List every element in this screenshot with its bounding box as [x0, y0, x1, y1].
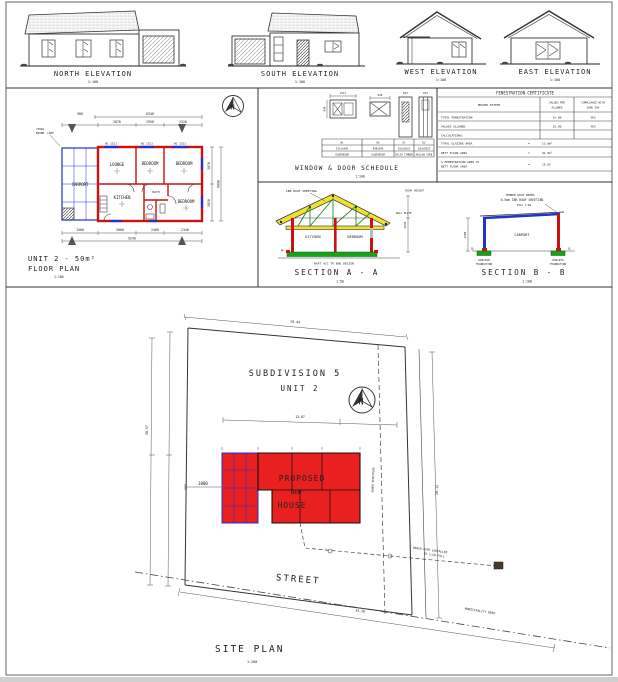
svg-text:900: 900: [77, 112, 83, 116]
svg-text:BEDROOM: BEDROOM: [347, 235, 363, 239]
svg-text:VALUES ALLOWED: VALUES ALLOWED: [441, 125, 466, 129]
roof-annotation: TIMBER ROOF BEAMS 0.5mm IBR ROOF SHEETIN…: [501, 193, 544, 207]
svg-text:TOTAL GLAZING AREA: TOTAL GLAZING AREA: [441, 142, 473, 146]
entrance-door: [297, 40, 309, 66]
wall-middle: [334, 218, 337, 252]
svg-text:SOLID TIMBER: SOLID TIMBER: [395, 153, 414, 157]
svg-text:VALUES PER: VALUES PER: [549, 101, 565, 105]
footprint-house: [258, 453, 360, 523]
svg-text:D2: D2: [422, 141, 426, 145]
svg-text:2870: 2870: [113, 120, 121, 124]
site-north-arrow-icon: N: [349, 387, 375, 413]
subdivision-label: SUBDIVISION 5: [249, 369, 342, 379]
svg-text:BEDROOM: BEDROOM: [142, 161, 159, 166]
foundation-right: [551, 251, 565, 256]
svg-text:18.44: 18.44: [290, 320, 301, 325]
svg-text:1511x949: 1511x949: [336, 147, 349, 151]
svg-text:BOUND. LINE: BOUND. LINE: [36, 131, 54, 135]
house-label-3: HOUSE: [277, 501, 306, 510]
svg-text:15.05: 15.05: [542, 163, 551, 167]
svg-text:15.00: 15.00: [553, 116, 562, 120]
svg-text:FOUNDATION: FOUNDATION: [476, 262, 493, 266]
svg-text:1500: 1500: [76, 228, 84, 232]
fenestration-certificate: FENESTRATION CERTIFICATE PROVED EXTENT V…: [438, 91, 612, 172]
svg-text:GL: GL: [281, 248, 285, 252]
svg-text:BEDROOM: BEDROOM: [178, 199, 195, 204]
svg-text:2400: 2400: [463, 231, 467, 238]
wall-left: [291, 218, 294, 252]
page-edge-shadow: [0, 677, 618, 682]
east-elevation-drawing: EAST ELEVATION 1:100: [500, 11, 600, 82]
svg-text:20.12: 20.12: [435, 485, 440, 495]
svg-text:SANS 204: SANS 204: [587, 106, 600, 110]
site-plan-scale: 1:200: [247, 660, 257, 664]
svg-text:41.0m²: 41.0m²: [542, 151, 553, 155]
south-elevation-scale: 1:100: [295, 80, 305, 84]
svg-text:KITCHEN: KITCHEN: [114, 195, 131, 200]
window-door-schedule: 1511 949 949 813 813 W1 W2 D1 D2 1511x94…: [295, 91, 434, 179]
svg-text:3000: 3000: [116, 228, 124, 232]
svg-text:949: 949: [323, 106, 327, 111]
svg-text:PROVED EXTENT: PROVED EXTENT: [478, 103, 501, 107]
svg-text:D1: D1: [402, 141, 406, 145]
svg-text:949: 949: [378, 93, 383, 97]
svg-text:13.87: 13.87: [295, 415, 305, 419]
svg-text:LOUNGE: LOUNGE: [110, 162, 125, 167]
schedule-scale: 1:100: [355, 175, 365, 179]
foundation-left: [477, 251, 491, 256]
municipality-boundary-label: MUNICIPALITY BDRY: [465, 607, 496, 616]
unit-label: UNIT 2: [280, 384, 319, 393]
svg-text:813x2032: 813x2032: [418, 147, 431, 151]
svg-text:6090: 6090: [217, 180, 221, 188]
schedule-table-text: W1 W2 D1 D2 1511x949 949x949 813x2032 81…: [335, 141, 433, 157]
svg-text:3070: 3070: [207, 162, 211, 170]
svg-text:2950: 2950: [146, 120, 154, 124]
fenestration-title: FENESTRATION CERTIFICATE: [496, 91, 554, 96]
garage-door: [143, 36, 174, 63]
svg-text:FOUNDATION: FOUNDATION: [550, 262, 567, 266]
section-a-drawing: IBR ROOF SHEETING ROOF HEIGHT WALL PLATE…: [276, 189, 424, 284]
north-windows: [42, 40, 123, 57]
floor-plan-drawing: N 900 8340 2870 2950 2520 750mm BOUND. L…: [28, 96, 244, 280]
svg-text:COMPLIANCE WITH: COMPLIANCE WITH: [581, 101, 605, 105]
svg-text:1511: 1511: [340, 91, 347, 95]
svg-text:W1 1511: W1 1511: [105, 142, 117, 146]
room-labels: LOUNGE BEDROOM BEDROOM KITCHEN BATH BEDR…: [72, 161, 195, 204]
svg-text:=: =: [528, 151, 530, 155]
svg-text:13.0m²: 13.0m²: [542, 142, 553, 146]
roof-note: IBR ROOF SHEETING: [286, 189, 317, 193]
svg-text:24.38: 24.38: [355, 608, 365, 613]
section-b-scale: 1:100: [522, 280, 532, 284]
foundation-labels: 600x250 FOUNDATION 600x250 FOUNDATION: [476, 258, 567, 266]
floor-plan-scale: 1:100: [54, 275, 64, 279]
floor-plan-subtitle: FLOOR PLAN: [28, 265, 80, 273]
svg-text:N: N: [231, 104, 235, 112]
svg-text:2520: 2520: [179, 120, 187, 124]
street-label: STREET: [276, 573, 321, 586]
floor-slab: [287, 252, 377, 257]
svg-text:949x949: 949x949: [373, 147, 384, 151]
south-elevation-label: SOUTH ELEVATION: [261, 70, 339, 78]
garage-door: [235, 39, 265, 64]
svg-text:% FENESTRATION AREA TO: % FENESTRATION AREA TO: [441, 160, 480, 164]
svg-text:=: =: [528, 163, 530, 167]
drain-line: DRAIN PIPE INSTALLED TO 1:60 FALL: [300, 523, 503, 569]
section-b-title: SECTION B - B: [482, 268, 567, 277]
west-elevation-scale: 1:100: [436, 78, 446, 82]
svg-text:W1: W1: [340, 141, 344, 145]
svg-text:W2: W2: [376, 141, 380, 145]
svg-text:N: N: [359, 398, 364, 408]
roof-height-note: ROOF HEIGHT: [405, 189, 424, 193]
site-plan-title: SITE PLAN: [215, 644, 284, 655]
drawing-sheet: NORTH ELEVATION 1:100 SOUTH ELEVATION 1:…: [0, 0, 618, 682]
svg-text:YES: YES: [590, 125, 595, 129]
house-footprint: PROPOSED NEW HOUSE: [222, 447, 360, 523]
section-a-title: SECTION A - A: [295, 268, 380, 277]
svg-text:ALUMINIUM: ALUMINIUM: [335, 153, 349, 157]
carport-wall: [557, 214, 560, 250]
house-label-2: NEW: [291, 489, 302, 496]
svg-text:GL: GL: [471, 247, 475, 251]
slab-note: RAFT ACC TO ENG DESIGN: [314, 262, 354, 266]
plan-dims-right: 3070 3020 6090: [207, 147, 223, 221]
svg-text:2340: 2340: [181, 228, 189, 232]
svg-text:15.00: 15.00: [553, 125, 562, 129]
window-tags: W1 1511 W1 1511 W1 1511: [105, 142, 186, 146]
svg-text:CALCULATIONS:: CALCULATIONS:: [441, 134, 464, 138]
svg-text:KITCHEN: KITCHEN: [305, 235, 320, 239]
svg-text:NETT FLOOR AREA: NETT FLOOR AREA: [441, 165, 467, 169]
svg-text:NETT FLOOR AREA: NETT FLOOR AREA: [441, 151, 467, 155]
svg-text:9240: 9240: [128, 237, 136, 241]
offset-dim: 3000: [198, 481, 208, 486]
svg-text:3020: 3020: [207, 199, 211, 207]
north-elevation-scale: 1:100: [88, 80, 98, 84]
south-elevation-drawing: SOUTH ELEVATION 1:100: [228, 13, 365, 84]
sewer-connection: [494, 562, 503, 569]
svg-text:8340: 8340: [146, 112, 154, 116]
svg-text:ALLOWED: ALLOWED: [552, 106, 563, 110]
carport-post: [483, 218, 486, 250]
section-b-drawing: CARPORT TIMBER ROOF BEAMS 0.5mm IBR ROOF…: [463, 193, 575, 284]
svg-text:HOLLOW CORE: HOLLOW CORE: [416, 153, 433, 157]
svg-text:CARPORT: CARPORT: [72, 182, 89, 187]
svg-text:W1 1511: W1 1511: [174, 142, 186, 146]
svg-text:FALL 1:60: FALL 1:60: [517, 203, 531, 207]
north-arrow-icon: N: [223, 96, 244, 117]
svg-text:BATH: BATH: [152, 190, 159, 194]
svg-text:GL: GL: [568, 247, 572, 251]
svg-text:=: =: [528, 142, 530, 146]
svg-text:BEDROOM: BEDROOM: [176, 161, 193, 166]
site-plan-drawing: SEWER SERVITUDE 18.44 30.57 20.12 13.87 …: [135, 314, 610, 664]
section-a-scale: 1:50: [336, 280, 344, 284]
fenestration-text: PROVED EXTENT VALUES PER ALLOWED COMPLIA…: [441, 101, 605, 169]
carport-beam: [483, 214, 560, 218]
floor-plan-title: UNIT 2 - 50m²: [28, 255, 96, 263]
svg-text:813x2032: 813x2032: [398, 147, 411, 151]
servitude-line: [378, 345, 385, 615]
north-elevation-label: NORTH ELEVATION: [54, 70, 132, 78]
schedule-title: WINDOW & DOOR SCHEDULE: [295, 165, 399, 172]
architectural-drawing: NORTH ELEVATION 1:100 SOUTH ELEVATION 1:…: [0, 0, 618, 682]
svg-text:0.5mm IBR ROOF SHEETING: 0.5mm IBR ROOF SHEETING: [501, 198, 544, 202]
west-elevation-drawing: WEST ELEVATION 1:100: [396, 12, 486, 82]
east-elevation-scale: 1:100: [550, 78, 560, 82]
svg-text:2400: 2400: [151, 228, 159, 232]
svg-text:TOTAL FENESTRATION: TOTAL FENESTRATION: [441, 116, 473, 120]
servitude-label: SEWER SERVITUDE: [371, 467, 376, 493]
north-elevation-drawing: NORTH ELEVATION 1:100: [20, 11, 186, 84]
svg-text:ALUMINIUM: ALUMINIUM: [371, 153, 385, 157]
east-elevation-label: EAST ELEVATION: [518, 68, 591, 76]
svg-text:813: 813: [403, 91, 408, 95]
west-elevation-label: WEST ELEVATION: [404, 68, 477, 76]
svg-text:W1 1511: W1 1511: [141, 142, 153, 146]
carport-label: CARPORT: [514, 233, 530, 237]
svg-text:TIMBER ROOF BEAMS: TIMBER ROOF BEAMS: [505, 193, 535, 197]
house-label-1: PROPOSED: [279, 474, 326, 483]
wallplate-note: WALL PLATE: [396, 211, 412, 215]
svg-text:YES: YES: [590, 116, 595, 120]
plan-dims-bottom: 1500 3000 2400 2340 9240: [62, 228, 202, 243]
svg-text:813: 813: [423, 91, 428, 95]
svg-text:30.57: 30.57: [145, 425, 149, 435]
svg-text:2595: 2595: [403, 221, 407, 228]
